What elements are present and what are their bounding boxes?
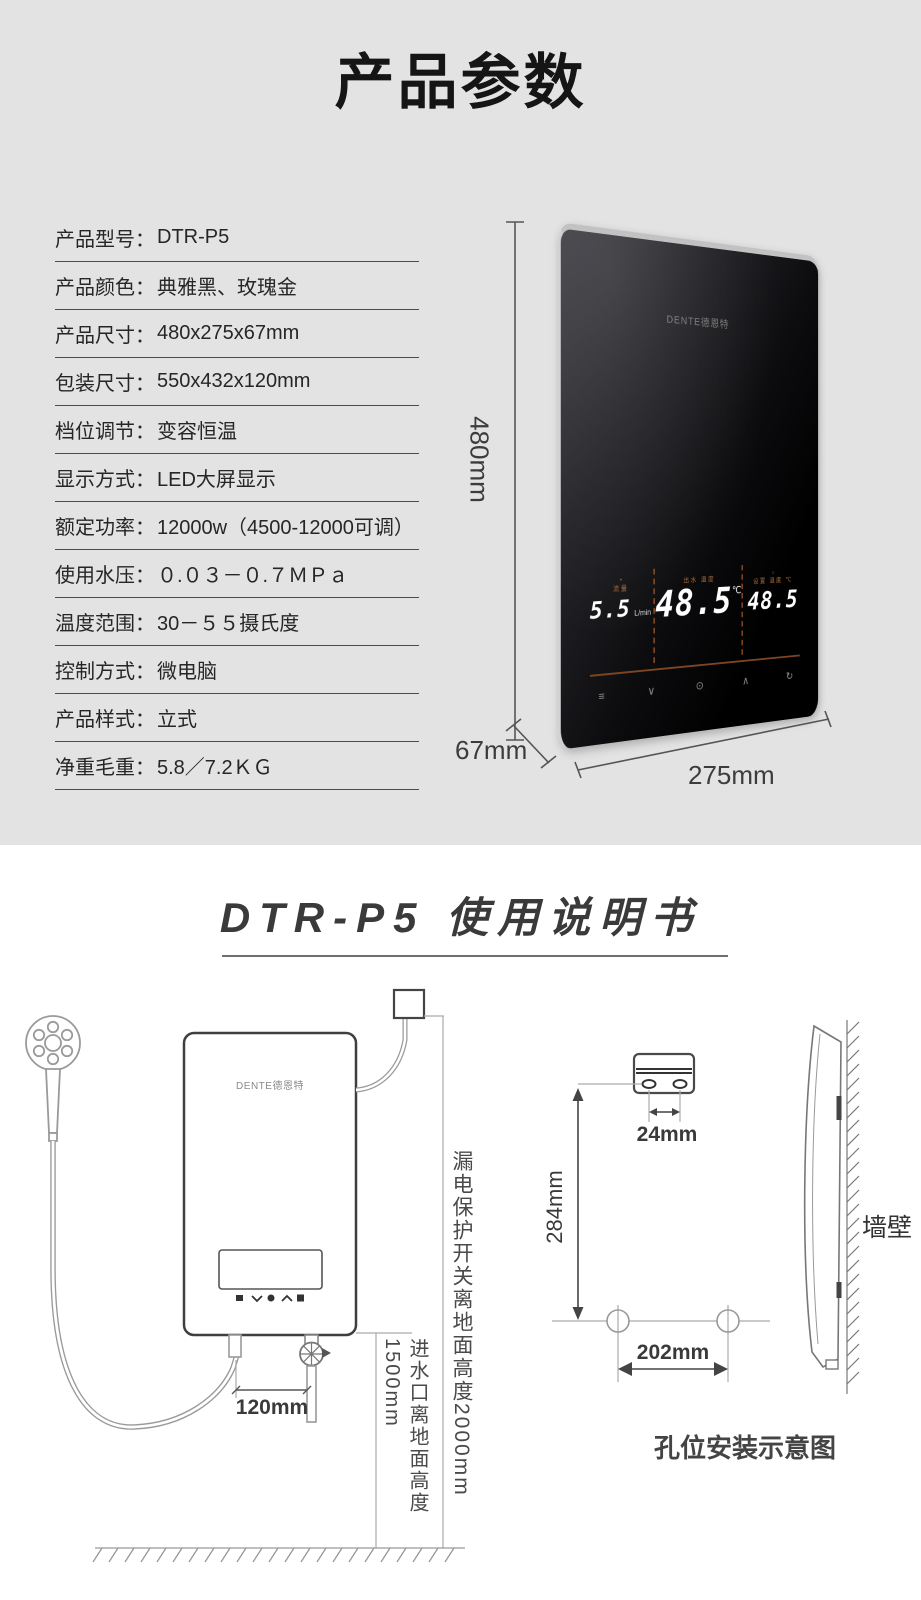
shower-head-icon [26, 1016, 80, 1141]
spec-table: 产品型号：DTR-P5 产品颜色：典雅黑、玫瑰金 产品尺寸：480x275x67… [55, 214, 419, 790]
device-control-icons [236, 1295, 304, 1302]
set-temp-value: 48.5 [747, 585, 798, 616]
spec-label: 档位调节： [55, 415, 155, 444]
table-row: 净重毛重：5.8／7.2ＫＧ [55, 742, 419, 790]
depth-dim-label: 67mm [455, 735, 527, 766]
spec-value: 微电脑 [157, 655, 217, 684]
table-row: 控制方式：微电脑 [55, 646, 419, 694]
heater-outline: DENTE德恩特 [184, 1033, 356, 1335]
flow-value: 5.5 [590, 594, 631, 624]
spec-label: 控制方式： [55, 655, 155, 684]
bracket-holes-label: 24mm [637, 1123, 698, 1146]
spec-label: 净重毛重： [55, 751, 155, 780]
inlet-height-note: 进水口离地面高度1500mm [380, 1338, 432, 1600]
spec-label: 产品样式： [55, 703, 155, 732]
flow-label: 流量 [587, 582, 653, 595]
holes-vertical-dim [573, 1088, 584, 1320]
spec-value: 5.8／7.2ＫＧ [157, 751, 273, 780]
outlet-pipe [229, 1335, 241, 1357]
spec-label: 包装尺寸： [55, 367, 155, 396]
page-title: 产品参数 [0, 34, 921, 121]
brand-logo: DENTE德恩特 [561, 301, 818, 339]
set-temp-readout: ○ 设置 温度 ℃ 48.5 [741, 562, 802, 655]
set-temp-label: 设置 温度 ℃ [743, 574, 802, 586]
led-display: • 流量 5.5 L/min 出水 温度 48.5℃ ○ 设置 温度 ℃ 48.… [587, 562, 802, 669]
table-row: 温度范围：30－５５摄氏度 [55, 598, 419, 646]
spec-value: LED大屏显示 [157, 463, 276, 492]
outlet-temp-unit: ℃ [732, 584, 741, 595]
table-row: 产品尺寸：480x275x67mm [55, 310, 419, 358]
spec-value: 30－５５摄氏度 [157, 607, 299, 636]
touch-controls: ≡ ∨ ⊙ ∧ ↻ [599, 669, 794, 703]
spec-label: 产品尺寸： [55, 319, 155, 348]
spec-value: 12000w（4500-12000可调） [157, 511, 414, 540]
holes-vertical-label: 284mm [542, 1157, 568, 1257]
outlet-temp-readout: 出水 温度 48.5℃ [654, 564, 742, 662]
manual-title: DTR-P5 使用说明书 [0, 884, 921, 945]
table-row: 使用水压：０.０３－０.７ＭＰａ [55, 550, 419, 598]
holes-horizontal-label: 202mm [637, 1341, 709, 1364]
shower-hose [53, 1141, 237, 1427]
wall-holes [552, 1305, 770, 1337]
pipe-spacing-label: 120mm [236, 1396, 308, 1419]
flow-unit: L/min [634, 608, 651, 618]
table-row: 产品型号：DTR-P5 [55, 214, 419, 262]
spec-value: 550x432x120mm [157, 370, 310, 393]
water-drop-icon: • [587, 577, 653, 585]
spec-value: 立式 [157, 703, 197, 732]
diagram-caption: 孔位安装示意图 [638, 1428, 852, 1465]
product-detail-page: 产品参数 产品型号：DTR-P5 产品颜色：典雅黑、玫瑰金 产品尺寸：480x2… [0, 0, 921, 1600]
timer-icon: ○ [743, 570, 802, 577]
pipe-spacing-dim: 120mm [232, 1360, 311, 1419]
mode-icon: ↻ [786, 669, 793, 682]
display-divider [590, 654, 800, 676]
heater-side-view [805, 1026, 842, 1369]
height-dim-label: 480mm [464, 410, 495, 510]
bracket-holes-dim: 24mm [637, 1090, 698, 1146]
wall-label: 墙壁 [862, 1208, 912, 1244]
spec-value: 480x275x67mm [157, 322, 299, 345]
spec-label: 产品型号： [55, 223, 155, 252]
spec-value: 典雅黑、玫瑰金 [157, 271, 297, 300]
outlet-temp-value: 48.5 [655, 580, 732, 626]
table-row: 额定功率：12000w（4500-12000可调） [55, 502, 419, 550]
spec-label: 额定功率： [55, 511, 155, 540]
arrow-down-icon: ∨ [648, 684, 655, 698]
height-dim-line [506, 222, 524, 740]
arrow-up-icon: ∧ [742, 674, 749, 687]
outlet-temp-label: 出水 温度 [655, 573, 741, 587]
breaker-height-note: 漏电保护开关离地面高度2000mm [446, 1150, 476, 1497]
spec-label: 显示方式： [55, 463, 155, 492]
table-row: 档位调节：变容恒温 [55, 406, 419, 454]
width-dim-label: 275mm [688, 760, 775, 791]
mounting-bracket-icon [634, 1054, 694, 1093]
manual-title-underline [222, 955, 728, 957]
wall-hatch [847, 1020, 859, 1394]
device-display-panel [219, 1250, 322, 1289]
spec-value: DTR-P5 [157, 226, 229, 249]
spec-label: 产品颜色： [55, 271, 155, 300]
device-logo-text: DENTE德恩特 [236, 1079, 304, 1092]
spec-value: ０.０３－０.７ＭＰａ [157, 559, 348, 588]
table-row: 显示方式：LED大屏显示 [55, 454, 419, 502]
flow-readout: • 流量 5.5 L/min [587, 568, 653, 669]
spec-label: 使用水压： [55, 559, 155, 588]
spec-section: 产品参数 产品型号：DTR-P5 产品颜色：典雅黑、玫瑰金 产品尺寸：480x2… [0, 0, 921, 845]
table-row: 产品样式：立式 [55, 694, 419, 742]
power-icon: ⊙ [696, 679, 704, 693]
holes-horizontal-dim: 202mm [618, 1334, 728, 1382]
power-cord [356, 1018, 405, 1090]
product-photo: DENTE德恩特 • 流量 5.5 L/min 出水 温度 48.5℃ ○ 设置… [558, 222, 818, 750]
table-row: 包装尺寸：550x432x120mm [55, 358, 419, 406]
spec-value: 变容恒温 [157, 415, 237, 444]
menu-icon: ≡ [599, 689, 605, 703]
spec-label: 温度范围： [55, 607, 155, 636]
table-row: 产品颜色：典雅黑、玫瑰金 [55, 262, 419, 310]
breaker-box [394, 990, 424, 1018]
inlet-valve-icon [300, 1335, 331, 1422]
